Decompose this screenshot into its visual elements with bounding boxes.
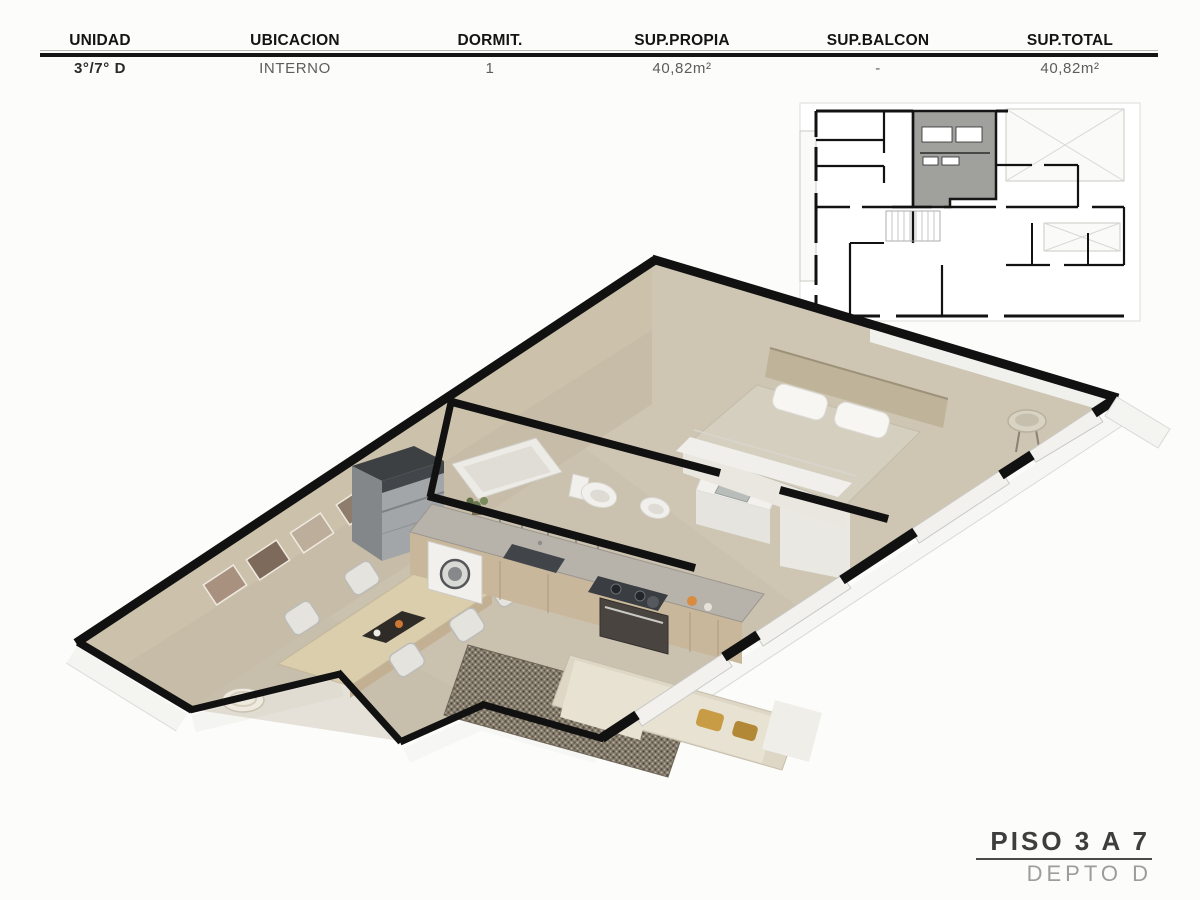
floor-key-plan — [800, 103, 1140, 321]
apartment-3d-render — [0, 0, 1200, 900]
counter-plate — [687, 596, 697, 606]
plan-sheet: UNIDAD UBICACION DORMIT. SUP.PROPIA SUP.… — [0, 0, 1200, 900]
floor-range-label: PISO 3 A 7 — [976, 826, 1152, 860]
unit-label: DEPTO D — [976, 861, 1152, 887]
sheet-footer: PISO 3 A 7 DEPTO D — [976, 826, 1152, 887]
